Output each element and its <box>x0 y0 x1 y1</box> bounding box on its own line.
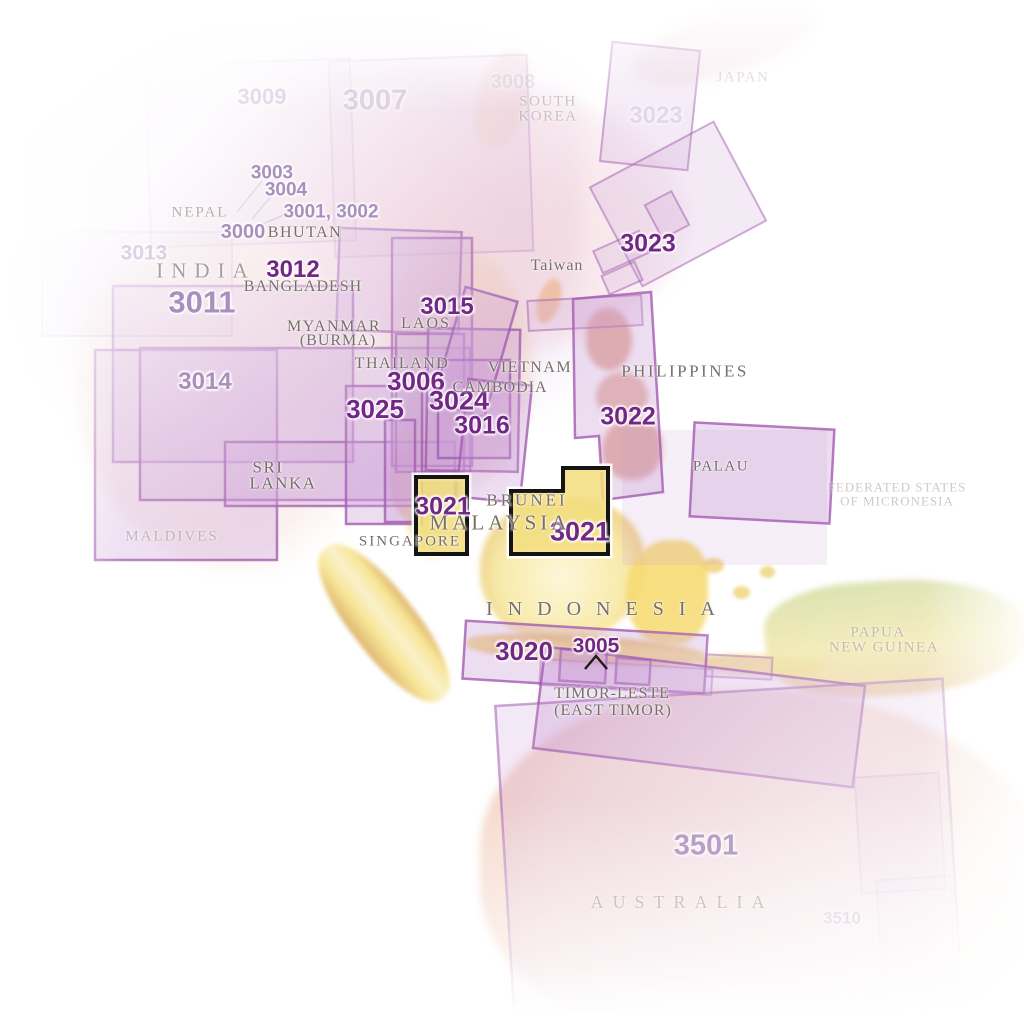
sheet-label-3008[interactable]: 3008 <box>491 72 536 92</box>
sheet-box-malay-strip[interactable] <box>385 420 415 522</box>
country-label-timor-line2: (EAST TIMOR) <box>554 703 672 719</box>
country-label-taiwan: Taiwan <box>531 258 584 274</box>
country-label-sri-lanka-line2: LANKA <box>250 475 317 492</box>
country-label-papua-line1: PAPUA <box>850 626 905 641</box>
country-label-papua-line2: NEW GUINEA <box>829 641 939 656</box>
sheet-label-3011[interactable]: 3011 <box>168 287 235 318</box>
country-label-indonesia: INDONESIA <box>486 599 730 619</box>
sheet-label-3004[interactable]: 3004 <box>265 181 307 200</box>
sheet-label-3510[interactable]: 3510 <box>823 910 861 927</box>
country-label-bangladesh: BANGLADESH <box>244 279 362 295</box>
country-label-myanmar-line2: (BURMA) <box>300 333 376 349</box>
sheet-label-3007[interactable]: 3007 <box>343 87 408 116</box>
sheet-label-3022[interactable]: 3022 <box>600 405 656 430</box>
sheet-label-3005[interactable]: 3005 <box>573 636 620 657</box>
country-label-maldives: MALDIVES <box>125 530 219 545</box>
sheet-label-3025[interactable]: 3025 <box>346 396 404 422</box>
country-label-timor-line1: TIMOR-LESTE <box>554 686 670 702</box>
country-label-vietnam: VIETNAM <box>488 360 572 376</box>
country-label-thailand: THAILAND <box>355 356 450 372</box>
country-label-south-korea-line2: KOREA <box>518 110 577 125</box>
country-label-brunei: BRUNEI <box>486 492 567 509</box>
sheet-label-3001-3002[interactable]: 3001, 3002 <box>283 203 378 222</box>
sheet-label-3000[interactable]: 3000 <box>221 222 266 242</box>
country-label-malaysia: MALAYSIA <box>430 513 571 534</box>
country-label-singapore: SINGAPORE <box>359 535 461 550</box>
country-label-japan: JAPAN <box>717 71 770 86</box>
sheet-label-3009[interactable]: 3009 <box>238 86 287 108</box>
country-label-micronesia-line1: FEDERATED STATES <box>828 481 967 494</box>
country-label-south-korea-line1: SOUTH <box>519 95 577 110</box>
country-label-laos: LAOS <box>401 316 451 332</box>
sheet-label-3023[interactable]: 3023 <box>620 232 676 257</box>
sheet-label-3023-top[interactable]: 3023 <box>629 104 682 128</box>
country-label-india: INDIA <box>156 261 255 282</box>
country-label-palau: PALAU <box>693 460 749 475</box>
sheet-label-3014[interactable]: 3014 <box>178 370 231 394</box>
map-canvas: 3009 3007 3008 3023 3003 3004 3001, 3002… <box>0 0 1024 1024</box>
country-label-bhutan: BHUTAN <box>268 225 342 241</box>
country-label-australia: AUSTRALIA <box>591 893 774 911</box>
country-label-philippines: PHILIPPINES <box>621 363 749 380</box>
sheet-label-3020[interactable]: 3020 <box>495 638 553 664</box>
country-label-micronesia-line2: OF MICRONESIA <box>840 495 954 508</box>
country-label-cambodia: CAMBODIA <box>452 380 547 396</box>
sheet-label-3501[interactable]: 3501 <box>674 832 739 861</box>
sheet-label-3016[interactable]: 3016 <box>454 414 510 439</box>
country-label-nepal: NEPAL <box>172 206 229 221</box>
